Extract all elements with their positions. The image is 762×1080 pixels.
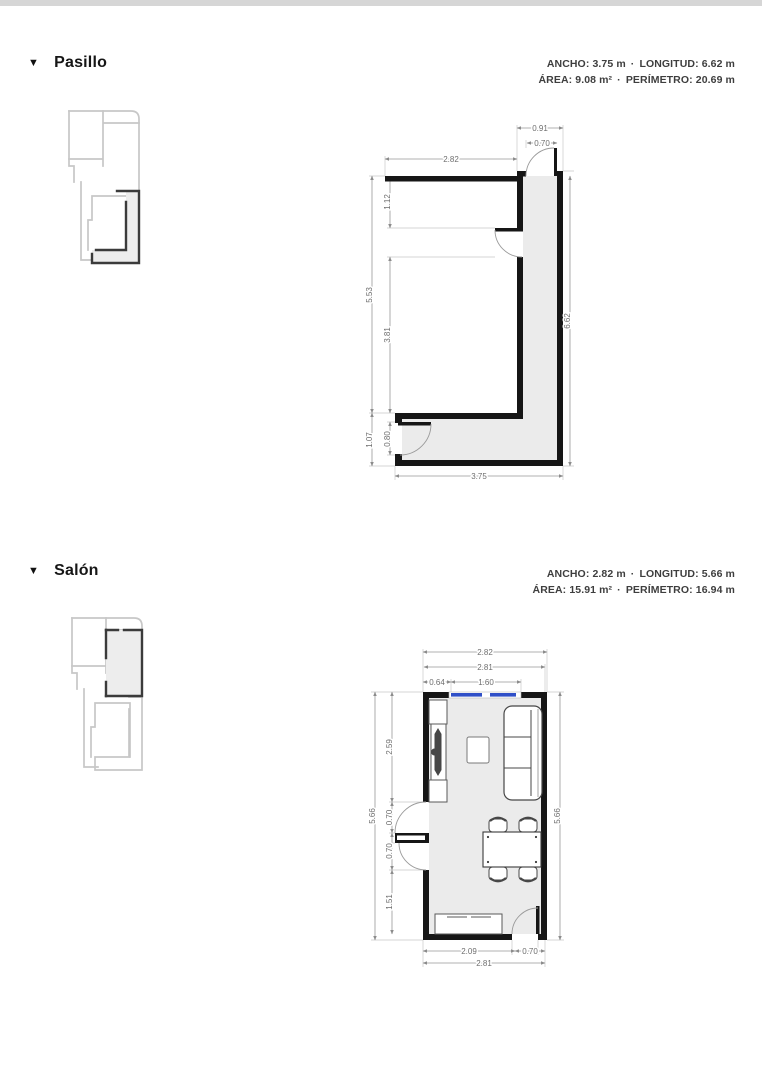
door-leaf (398, 422, 431, 426)
dining-table (483, 832, 541, 867)
section-header-pasillo[interactable]: ▼ Pasillo (28, 54, 107, 72)
floorplan-salon: 2.82 2.81 0.64 1.60 5.66 2.59 0.70 0.70 … (355, 640, 620, 980)
area-value: 9.08 m² (575, 74, 612, 86)
dim-label: 0.80 (383, 431, 392, 447)
area-label: ÁREA: (533, 584, 567, 596)
dim-label: 5.53 (365, 287, 374, 303)
longitud-label: LONGITUD: (639, 568, 698, 580)
minimap-pasillo (55, 103, 175, 278)
dim-label: 0.70 (385, 843, 394, 859)
room-stats-salon: ANCHO: 2.82 m · LONGITUD: 5.66 m ÁREA: 1… (533, 566, 735, 598)
dim-label: 2.59 (385, 739, 394, 755)
sofa (504, 706, 542, 800)
perimetro-label: PERÍMETRO: (626, 74, 693, 86)
section-header-salon[interactable]: ▼ Salón (28, 562, 99, 580)
dim-label: 3.81 (383, 327, 392, 343)
perimetro-value: 20.69 m (696, 74, 735, 86)
dim-label: 6.62 (563, 313, 572, 329)
separator: · (631, 58, 635, 70)
ancho-label: ANCHO: (547, 568, 590, 580)
dim-label: 1.12 (383, 194, 392, 210)
separator: · (631, 568, 635, 580)
door-leaf (536, 906, 540, 934)
longitud-value: 5.66 m (702, 568, 735, 580)
dim-label: 2.82 (477, 648, 493, 657)
dim-label: 1.07 (365, 432, 374, 448)
dim-label: 0.70 (385, 809, 394, 825)
stats-line-2: ÁREA: 9.08 m² · PERÍMETRO: 20.69 m (538, 72, 735, 88)
dim-label: 2.81 (477, 663, 493, 672)
page-top-border (0, 0, 762, 6)
dim-label: 3.75 (471, 472, 487, 481)
door-swing-arc (395, 802, 426, 833)
collapse-triangle-icon[interactable]: ▼ (28, 566, 39, 577)
door-leaf (495, 228, 523, 232)
chair (489, 867, 507, 881)
floorplan-pasillo: 0.91 0.70 2.82 5.53 1.12 3.81 1.07 0.80 … (355, 95, 660, 490)
coffee-table (467, 737, 489, 763)
chair (489, 818, 507, 832)
longitud-label: LONGITUD: (639, 58, 698, 70)
section-title: Salón (54, 562, 99, 580)
dim-label: 0.70 (522, 947, 538, 956)
dim-label: 5.66 (553, 808, 562, 824)
door-swing-arc (526, 148, 554, 176)
area-label: ÁREA: (538, 74, 572, 86)
floorplan-report-page: { "sections": [ { "id": "pasillo", "coll… (0, 0, 762, 1080)
dim-label: 0.70 (534, 139, 550, 148)
section-title: Pasillo (54, 54, 107, 72)
perimetro-label: PERÍMETRO: (626, 584, 693, 596)
chair (519, 818, 537, 832)
window (490, 693, 516, 697)
tv-unit (429, 700, 447, 802)
stats-line-1: ANCHO: 3.75 m · LONGITUD: 6.62 m (538, 56, 735, 72)
minimap-highlight-salon (106, 630, 142, 696)
room-stats-pasillo: ANCHO: 3.75 m · LONGITUD: 6.62 m ÁREA: 9… (538, 56, 735, 88)
chair (519, 867, 537, 881)
dim-label: 0.91 (532, 124, 548, 133)
door-swing-arc (495, 230, 522, 257)
dim-label: 1.60 (478, 678, 494, 687)
minimap-highlight-pasillo (92, 190, 139, 263)
ancho-value: 2.82 m (592, 568, 625, 580)
dim-label: 5.66 (368, 808, 377, 824)
stats-line-2: ÁREA: 15.91 m² · PERÍMETRO: 16.94 m (533, 582, 735, 598)
separator: · (617, 74, 621, 86)
collapse-triangle-icon[interactable]: ▼ (28, 58, 39, 69)
dim-label: 0.64 (429, 678, 445, 687)
ancho-label: ANCHO: (547, 58, 590, 70)
perimetro-value: 16.94 m (696, 584, 735, 596)
longitud-value: 6.62 m (702, 58, 735, 70)
door-leaf (554, 148, 557, 176)
sideboard (435, 914, 502, 934)
door-swing-arc (399, 843, 426, 870)
minimap-salon (58, 610, 178, 785)
dim-label: 2.09 (461, 947, 477, 956)
separator: · (617, 584, 621, 596)
dim-label: 1.51 (385, 894, 394, 910)
dim-label: 2.82 (443, 155, 459, 164)
stats-line-1: ANCHO: 2.82 m · LONGITUD: 5.66 m (533, 566, 735, 582)
window (451, 693, 482, 697)
dim-label: 2.81 (476, 959, 492, 968)
area-value: 15.91 m² (569, 584, 612, 596)
ancho-value: 3.75 m (592, 58, 625, 70)
